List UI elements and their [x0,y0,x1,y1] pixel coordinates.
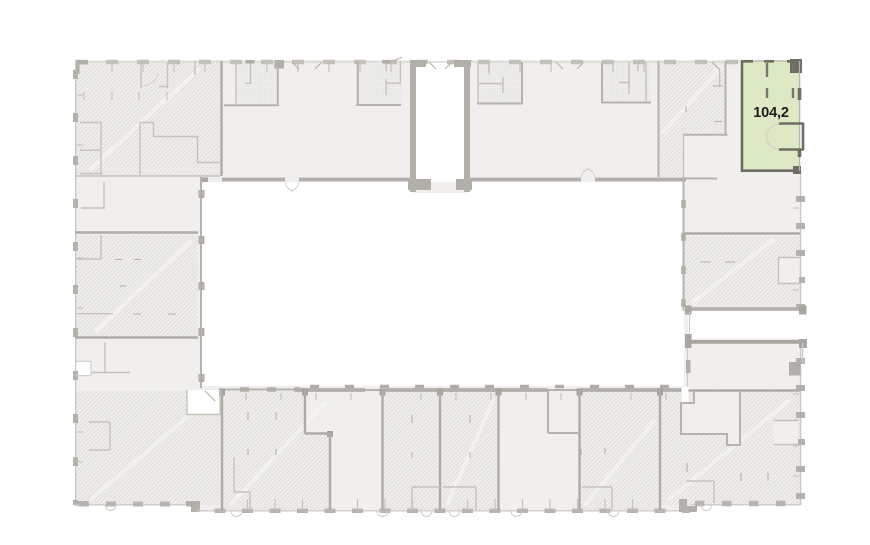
svg-text:104,2: 104,2 [753,105,789,121]
